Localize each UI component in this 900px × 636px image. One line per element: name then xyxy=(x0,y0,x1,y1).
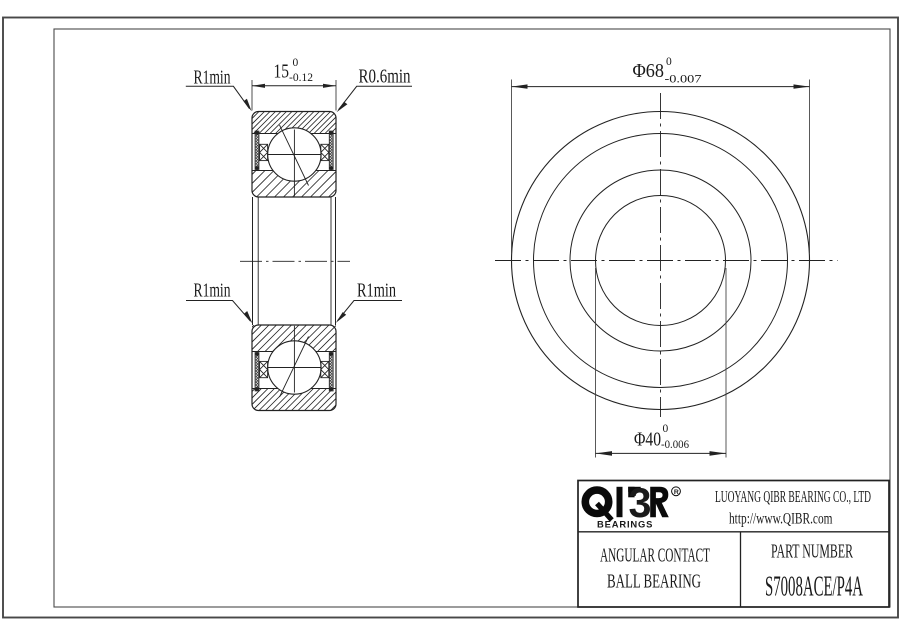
svg-text:0: 0 xyxy=(666,56,672,68)
svg-text:BALL BEARING: BALL BEARING xyxy=(607,570,701,592)
svg-text:R1min: R1min xyxy=(194,280,231,302)
svg-text:0: 0 xyxy=(663,423,669,435)
svg-text:R1min: R1min xyxy=(194,67,231,89)
svg-text:ANGULAR CONTACT: ANGULAR CONTACT xyxy=(600,545,710,567)
svg-text:Φ40: Φ40 xyxy=(634,428,661,450)
svg-text:R: R xyxy=(674,489,679,496)
svg-text:R0.6min: R0.6min xyxy=(359,66,411,88)
svg-text:PART NUMBER: PART NUMBER xyxy=(771,541,853,563)
svg-text:S7008ACE/P4A: S7008ACE/P4A xyxy=(765,571,863,602)
svg-text:Φ68: Φ68 xyxy=(633,60,665,82)
svg-text:0: 0 xyxy=(293,57,299,69)
svg-text:LUOYANG QIBR BEARING CO., LTD: LUOYANG QIBR BEARING CO., LTD xyxy=(715,487,871,506)
svg-text:R1min: R1min xyxy=(357,280,396,302)
svg-text:-0.12: -0.12 xyxy=(289,72,313,84)
svg-text:http://www.QIBR.com: http://www.QIBR.com xyxy=(729,511,833,528)
svg-text:15: 15 xyxy=(274,61,290,83)
svg-text:-0.006: -0.006 xyxy=(661,439,689,451)
svg-text:-0.007: -0.007 xyxy=(665,73,702,85)
svg-text:BEARINGS: BEARINGS xyxy=(597,518,653,529)
